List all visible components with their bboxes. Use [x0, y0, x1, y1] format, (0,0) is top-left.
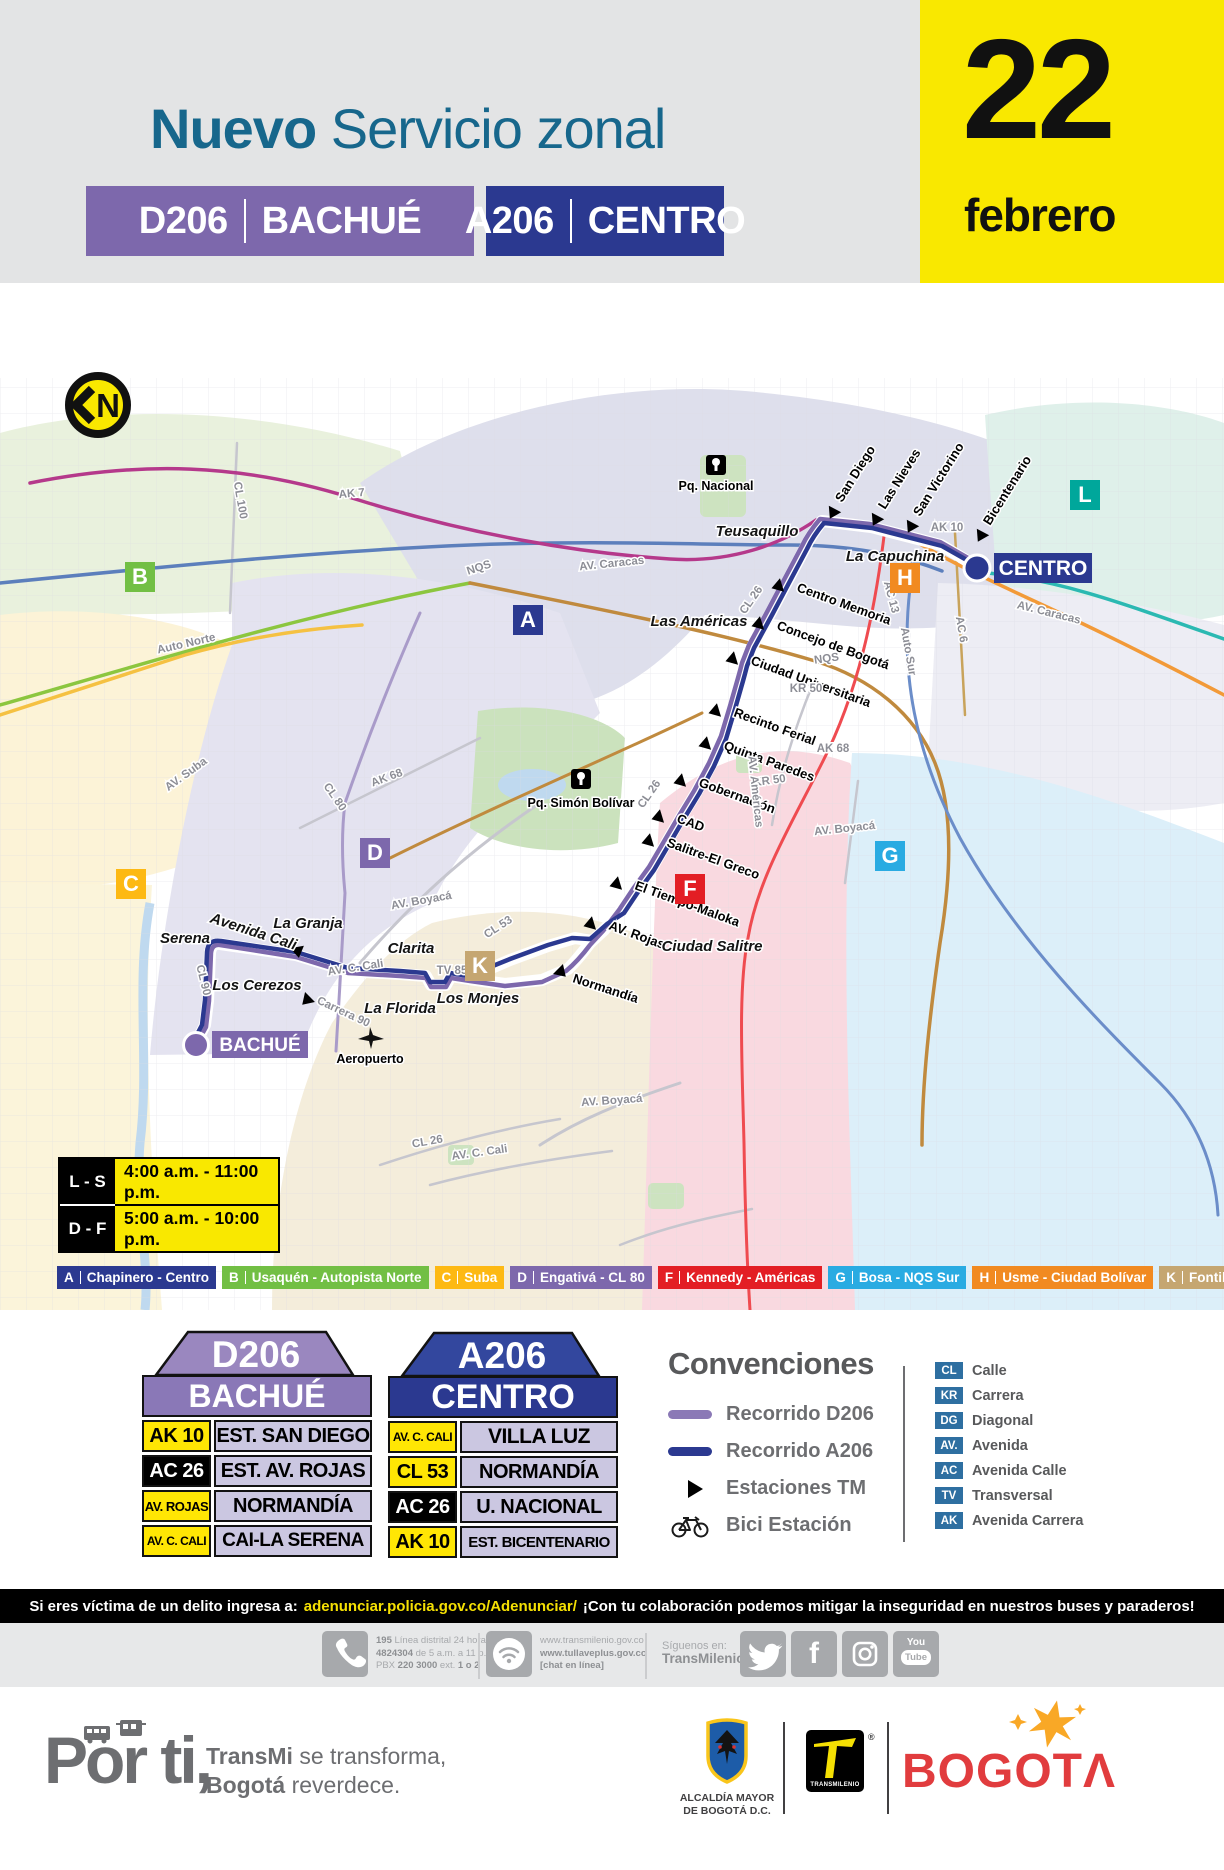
stop-name: CAI-LA SERENA — [214, 1525, 372, 1557]
zone-legend-item: AChapinero - Centro — [57, 1266, 216, 1289]
zone-letter: B — [132, 564, 148, 589]
stop-row: AV. ROJASNORMANDÍA — [142, 1490, 372, 1522]
web-info: www.transmilenio.gov.co www.tullaveplus.… — [540, 1635, 647, 1673]
poi-label: Aeropuerto — [336, 1052, 404, 1066]
route-card-d206: D206 BACHUÉ AK 10EST. SAN DIEGO AC 26EST… — [142, 1330, 372, 1560]
route-a206-swatch-icon — [668, 1447, 712, 1456]
route-card-a206: A206 CENTRO AV. C. CALIVILLA LUZ CL 53NO… — [388, 1331, 618, 1561]
route-code: D206 — [139, 200, 228, 243]
pbx-number: 220 3000 — [398, 1660, 438, 1671]
zone-legend-letter: H — [979, 1270, 989, 1285]
title-accent: Nuevo — [150, 97, 316, 160]
abbr-name: Carrera — [972, 1388, 1024, 1404]
youtube-icon[interactable]: You Tube — [893, 1631, 939, 1677]
area-label: Ciudad Salitre — [662, 938, 763, 955]
crime-report-banner: Si eres víctima de un delito ingresa a: … — [0, 1589, 1224, 1623]
area-label: Los Cerezos — [212, 977, 301, 994]
badge-divider — [570, 199, 572, 243]
transmilenio-url[interactable]: www.transmilenio.gov.co — [540, 1635, 647, 1648]
pbx-ext: 1 o 2 — [458, 1660, 480, 1671]
poi-label: Pq. Nacional — [678, 479, 753, 493]
alcaldia-line2: DE BOGOTÁ D.C. — [657, 1805, 797, 1818]
abbr-badge: KR — [935, 1387, 963, 1404]
date-day: 22 — [962, 8, 1112, 172]
zone-legend-item: HUsme - Ciudad Bolívar — [972, 1266, 1153, 1289]
header: Nuevo Servicio zonal D206BACHUÉ A206CENT… — [0, 0, 1224, 283]
contact-divider — [478, 1633, 480, 1679]
facebook-icon[interactable]: f — [791, 1631, 837, 1677]
zone-legend-divider — [457, 1271, 458, 1284]
alcaldia-shield-logo — [705, 1716, 749, 1786]
legend-label: Recorrido D206 — [726, 1403, 874, 1426]
pbx-label: PBX — [376, 1660, 395, 1671]
terminal-centro: CENTRO — [964, 553, 1092, 583]
zone-letter: C — [123, 871, 139, 896]
registered-mark: ® — [868, 1732, 875, 1742]
zone-legend-letter: D — [517, 1270, 527, 1285]
transmilenio-logo: TRANSMILENIO — [806, 1730, 864, 1792]
alcaldia-line1: ALCALDÍA MAYOR — [657, 1792, 797, 1805]
alert-suffix: ¡Con tu colaboración podemos mitigar la … — [583, 1598, 1195, 1615]
phone-4824304-desc: de 5 a.m. a 11 p.m. — [416, 1648, 497, 1659]
area-label: Las Américas — [650, 613, 747, 630]
abbr-row: DGDiagonal — [935, 1408, 1084, 1433]
twitter-icon[interactable] — [740, 1631, 786, 1677]
zone-letter: D — [367, 840, 383, 865]
area-label: Los Monjes — [437, 990, 520, 1007]
tm-station-icon — [668, 1480, 712, 1498]
stop-name: EST. AV. ROJAS — [214, 1455, 372, 1487]
schedule-days: L - S D - F — [60, 1159, 115, 1251]
phone-195-desc: Línea distrital 24 horas — [395, 1635, 491, 1646]
stop-via: CL 53 — [388, 1456, 457, 1488]
stop-row: AV. C. CALICAI-LA SERENA — [142, 1525, 372, 1557]
stop-via: AC 26 — [388, 1491, 457, 1523]
stop-row: AV. C. CALIVILLA LUZ — [388, 1421, 618, 1453]
abbr-row: AKAvenida Carrera — [935, 1508, 1084, 1533]
legend-label: Recorrido A206 — [726, 1440, 873, 1463]
card-top-a206: A206 — [388, 1331, 618, 1378]
schedule-days-row: L - S — [60, 1159, 115, 1206]
phone-195: 195 — [376, 1635, 392, 1646]
abbr-badge: AK — [935, 1512, 963, 1529]
legend-item-d206: Recorrido D206 — [668, 1396, 908, 1433]
area-label: La Capuchina — [846, 548, 944, 565]
abbr-name: Avenida Carrera — [972, 1513, 1084, 1529]
zone-legend-divider — [245, 1271, 246, 1284]
title-rest: Servicio zonal — [331, 97, 666, 160]
stop-name: U. NACIONAL — [460, 1491, 618, 1523]
abbr-badge: TV — [935, 1487, 963, 1504]
zone-legend-name: Chapinero - Centro — [87, 1270, 209, 1285]
stop-via: AK 10 — [388, 1526, 457, 1558]
footer-tagline: TransMi se transforma, Bogotá reverdece. — [206, 1742, 446, 1800]
route-name: CENTRO — [588, 200, 745, 243]
zone-legend-letter: A — [64, 1270, 74, 1285]
area-label: Serena — [160, 930, 210, 947]
date-block: 22 febrero — [920, 0, 1224, 283]
card-terminal: CENTRO — [388, 1376, 618, 1418]
tagline-bogota: Bogotá — [206, 1772, 285, 1798]
schedule-days-row: D - F — [60, 1206, 115, 1251]
area-label: La Florida — [364, 1000, 436, 1017]
zone-legend-divider — [679, 1271, 680, 1284]
abbr-row: KRCarrera — [935, 1383, 1084, 1408]
date-month: febrero — [964, 188, 1115, 242]
stop-name: EST. BICENTENARIO — [460, 1526, 618, 1558]
zone-letter: G — [881, 843, 898, 868]
zone-legend-name: Fontibón - CL 26 — [1189, 1270, 1224, 1285]
footer-divider — [887, 1722, 889, 1814]
stop-via: AC 26 — [142, 1455, 211, 1487]
zone-legend-name: Kennedy - Américas — [686, 1270, 815, 1285]
legend-label: Estaciones TM — [726, 1477, 866, 1500]
abbr-row: ACAvenida Calle — [935, 1458, 1084, 1483]
stop-via: AV. ROJAS — [142, 1490, 211, 1522]
abbr-badge: AC — [935, 1462, 963, 1479]
tullave-url[interactable]: www.tullaveplus.gov.co — [540, 1648, 647, 1661]
bogota-stars-icon — [1000, 1698, 1090, 1754]
legend-item-estaciones: Estaciones TM — [668, 1470, 908, 1507]
zone-letter: K — [472, 953, 488, 978]
terminal-bachue: BACHUÉ — [184, 1031, 309, 1058]
zone-legend-divider — [995, 1271, 996, 1284]
schedule-hours-row: 5:00 a.m. - 10:00 p.m. — [115, 1206, 278, 1251]
terminal-label: CENTRO — [999, 557, 1088, 580]
zone-legend-divider — [533, 1271, 534, 1284]
pbx-ext-label: ext. — [440, 1660, 455, 1671]
card-stops: AK 10EST. SAN DIEGO AC 26EST. AV. ROJAS … — [142, 1420, 372, 1557]
stop-row: AC 26EST. AV. ROJAS — [142, 1455, 372, 1487]
stop-row: AC 26U. NACIONAL — [388, 1491, 618, 1523]
area-label: Teusaquillo — [716, 523, 799, 540]
zone-legend-name: Usaquén - Autopista Norte — [252, 1270, 422, 1285]
map-legend: Convenciones Recorrido D206 Recorrido A2… — [668, 1346, 908, 1544]
alcaldia-text: ALCALDÍA MAYOR DE BOGOTÁ D.C. — [657, 1792, 797, 1818]
abbr-badge: AV. — [935, 1437, 963, 1454]
route-map: BACHUÉ CENTRO — [0, 283, 1224, 1310]
stop-via: AK 10 — [142, 1420, 211, 1452]
zone-legend-item: DEngativá - CL 80 — [510, 1266, 652, 1289]
route-badge-a206: A206CENTRO — [486, 186, 724, 256]
schedule-hours-row: 4:00 a.m. - 11:00 p.m. — [115, 1159, 278, 1206]
card-stops: AV. C. CALIVILLA LUZ CL 53NORMANDÍA AC 2… — [388, 1421, 618, 1558]
stop-name: NORMANDÍA — [460, 1456, 618, 1488]
transmilenio-label: TRANSMILENIO — [806, 1782, 864, 1788]
card-code: A206 — [458, 1335, 546, 1376]
abbr-name: Avenida Calle — [972, 1463, 1067, 1479]
tagline-transmi: TransMi — [206, 1743, 293, 1769]
zone-legend-item: BUsaquén - Autopista Norte — [222, 1266, 429, 1289]
abbr-badge: CL — [935, 1362, 963, 1379]
zone-legend-letter: B — [229, 1270, 239, 1285]
card-terminal: BACHUÉ — [142, 1375, 372, 1417]
contact-divider — [645, 1633, 647, 1679]
abbr-name: Calle — [972, 1363, 1007, 1379]
zone-legend-name: Bosa - NQS Sur — [859, 1270, 960, 1285]
wifi-icon — [486, 1631, 532, 1677]
zone-legend-item: CSuba — [435, 1266, 505, 1289]
area-label: Clarita — [388, 940, 435, 957]
youtube-tube: Tube — [901, 1650, 931, 1665]
zone-legend-item: GBosa - NQS Sur — [828, 1266, 966, 1289]
badge-divider — [244, 199, 246, 243]
route-name: BACHUÉ — [262, 200, 422, 243]
zone-legend-item: FKennedy - Américas — [658, 1266, 823, 1289]
legend-divider — [903, 1366, 905, 1542]
zone-legend-divider — [1182, 1271, 1183, 1284]
bike-icon — [668, 1514, 712, 1538]
abbr-name: Transversal — [972, 1488, 1053, 1504]
phone-4824304: 4824304 — [376, 1648, 413, 1659]
stop-name: EST. SAN DIEGO — [214, 1420, 372, 1452]
abbr-row: AV.Avenida — [935, 1433, 1084, 1458]
card-code: D206 — [212, 1334, 300, 1375]
zone-legend-bar: AChapinero - Centro BUsaquén - Autopista… — [57, 1266, 1224, 1289]
por-ti-wordmark: Por ti, — [44, 1722, 210, 1798]
zone-letter: A — [520, 607, 536, 632]
zone-legend-name: Suba — [464, 1270, 497, 1285]
road-label: AK 7 — [338, 487, 365, 501]
follow-account: TransMilenio — [662, 1653, 745, 1666]
compass-icon: N — [69, 376, 127, 434]
zone-legend-divider — [852, 1271, 853, 1284]
page-title: Nuevo Servicio zonal — [150, 96, 665, 161]
tagline-rest1: se transforma, — [299, 1743, 446, 1769]
stop-via: AV. C. CALI — [142, 1525, 211, 1557]
legend-label: Bici Estación — [726, 1514, 852, 1537]
zone-legend-letter: K — [1166, 1270, 1176, 1285]
legend-item-bici: Bici Estación — [668, 1507, 908, 1544]
abbr-badge: DG — [935, 1412, 963, 1429]
abbreviations-list: CLCalle KRCarrera DGDiagonal AV.Avenida … — [935, 1358, 1084, 1533]
stop-row: CL 53NORMANDÍA — [388, 1456, 618, 1488]
alert-prefix: Si eres víctima de un delito ingresa a: — [29, 1598, 297, 1615]
zone-legend-letter: F — [665, 1270, 673, 1285]
road-label: KR 50 — [790, 683, 823, 695]
poster: Nuevo Servicio zonal D206BACHUÉ A206CENT… — [0, 0, 1224, 1870]
route-d206-swatch-icon — [668, 1410, 712, 1419]
legend-title: Convenciones — [668, 1346, 908, 1382]
zone-legend-letter: G — [835, 1270, 846, 1285]
stop-row: AK 10EST. BICENTENARIO — [388, 1526, 618, 1558]
poi-label: Pq. Simón Bolívar — [528, 796, 635, 810]
road-label: AK 68 — [817, 743, 850, 755]
zone-letter: F — [683, 876, 696, 901]
road-label: AK 10 — [931, 522, 964, 534]
adenunciar-link[interactable]: adenunciar.policia.gov.co/Adenunciar/ — [304, 1598, 577, 1615]
stop-name: VILLA LUZ — [460, 1421, 618, 1453]
zone-letter: H — [897, 565, 913, 590]
abbr-row: TVTransversal — [935, 1483, 1084, 1508]
footer-divider — [783, 1722, 785, 1814]
area-label: La Granja — [273, 915, 342, 932]
abbr-name: Diagonal — [972, 1413, 1033, 1429]
stop-via: AV. C. CALI — [388, 1421, 457, 1453]
follow-info: Síguenos en: TransMilenio — [662, 1640, 745, 1665]
schedule-hours: 4:00 a.m. - 11:00 p.m. 5:00 a.m. - 10:00… — [115, 1159, 278, 1251]
zone-letter: L — [1078, 482, 1091, 507]
youtube-you: You — [893, 1637, 939, 1648]
stop-row: AK 10EST. SAN DIEGO — [142, 1420, 372, 1452]
zone-legend-name: Usme - Ciudad Bolívar — [1002, 1270, 1146, 1285]
phone-icon — [322, 1631, 368, 1677]
legend-item-a206: Recorrido A206 — [668, 1433, 908, 1470]
zone-legend-item: KFontibón - CL 26 — [1159, 1266, 1224, 1289]
chat-note: [chat en línea] — [540, 1660, 647, 1673]
contact-strip: 195 Línea distrital 24 horas 4824304 de … — [0, 1623, 1224, 1687]
card-top-d206: D206 — [142, 1330, 372, 1377]
schedule-box: L - S D - F 4:00 a.m. - 11:00 p.m. 5:00 … — [58, 1157, 280, 1253]
compass-letter: N — [96, 387, 120, 424]
route-badge-d206: D206BACHUÉ — [86, 186, 474, 256]
zone-legend-letter: C — [442, 1270, 452, 1285]
route-code: A206 — [465, 200, 554, 243]
terminal-label: BACHUÉ — [219, 1034, 300, 1056]
instagram-icon[interactable] — [842, 1631, 888, 1677]
road-label: TV 85 — [437, 965, 468, 977]
map-canvas: BACHUÉ CENTRO — [0, 283, 1224, 1310]
zone-legend-name: Engativá - CL 80 — [540, 1270, 645, 1285]
tagline-rest2: reverdece. — [292, 1772, 401, 1798]
abbr-row: CLCalle — [935, 1358, 1084, 1383]
abbr-name: Avenida — [972, 1438, 1028, 1454]
zone-legend-divider — [80, 1271, 81, 1284]
stop-name: NORMANDÍA — [214, 1490, 372, 1522]
